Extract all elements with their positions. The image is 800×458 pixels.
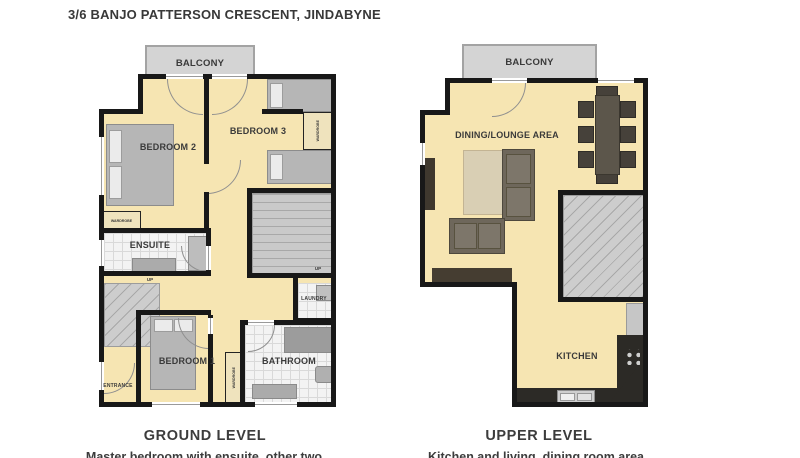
- ground-balcony-label: BALCONY: [176, 58, 224, 69]
- wall: [247, 273, 336, 278]
- wall: [204, 192, 209, 233]
- ground-level-heading: GROUND LEVEL: [95, 428, 315, 444]
- wall: [247, 188, 336, 193]
- dining-chair: [578, 101, 594, 118]
- door-gap: [492, 78, 527, 83]
- wardrobe-label: WARDROBE: [111, 219, 132, 223]
- double-bed: [106, 124, 174, 206]
- wall: [99, 271, 206, 276]
- room-label-dining-lounge: DINING/LOUNGE AREA: [427, 130, 587, 140]
- window: [152, 402, 200, 407]
- notch-cover: [95, 70, 138, 111]
- dining-chair: [620, 126, 636, 143]
- dining-chair: [620, 151, 636, 168]
- door-gap: [208, 318, 213, 334]
- upper-balcony: BALCONY: [462, 44, 597, 81]
- ground-level-caption: Master bedroom with ensuite, other two: [54, 450, 354, 458]
- pillow: [154, 319, 173, 332]
- wall: [136, 310, 211, 315]
- main-staircase: [252, 193, 333, 275]
- upper-level-heading: UPPER LEVEL: [429, 428, 649, 444]
- wall: [138, 74, 143, 114]
- wardrobe-label: WARDROBE: [232, 367, 236, 388]
- door-gap: [206, 246, 211, 270]
- sink-basin: [577, 393, 592, 401]
- pillow: [270, 154, 283, 180]
- vanity: [132, 258, 176, 272]
- upper-staircase: [563, 195, 645, 299]
- pillow: [109, 166, 122, 199]
- up-label: UP: [140, 277, 160, 282]
- wall: [136, 310, 141, 407]
- room-label-kitchen: KITCHEN: [537, 351, 617, 361]
- sink-basin: [560, 393, 575, 401]
- room-label-bedroom2: BEDROOM 2: [128, 142, 208, 152]
- wall: [512, 282, 517, 407]
- dining-table: [595, 95, 620, 175]
- wall: [643, 78, 648, 407]
- wall: [558, 190, 648, 195]
- wall: [558, 190, 563, 302]
- wall: [262, 109, 303, 114]
- dining-chair: [578, 151, 594, 168]
- room-label-bedroom1: BEDROOM 1: [147, 356, 227, 366]
- wall: [331, 74, 336, 407]
- door-gap: [248, 320, 274, 325]
- dining-chair: [620, 101, 636, 118]
- notch-cover: [412, 287, 512, 412]
- single-bed: [267, 79, 332, 112]
- loveseat: [449, 218, 505, 254]
- room-label-ensuite: ENSUITE: [115, 240, 185, 250]
- upper-level-caption: Kitchen and living, dining room area: [386, 450, 686, 458]
- upper-balcony-label: BALCONY: [505, 57, 553, 68]
- sofa-cushion: [478, 223, 501, 249]
- single-bed: [267, 150, 333, 184]
- room-label-bedroom3: BEDROOM 3: [218, 126, 298, 136]
- wall: [240, 320, 245, 407]
- wardrobe: WARDROBE: [303, 112, 333, 150]
- room-label-laundry: LAUNDRY: [294, 296, 334, 302]
- page-title: 3/6 BANJO PATTERSON CRESCENT, JINDABYNE: [68, 7, 381, 22]
- floor-plan-page: 3/6 BANJO PATTERSON CRESCENT, JINDABYNE …: [0, 0, 800, 458]
- cooktop: [623, 349, 640, 365]
- room-label-entrance: ENTRANCE: [98, 383, 138, 389]
- wall: [512, 402, 648, 407]
- wardrobe-label: WARDROBE: [316, 120, 320, 141]
- vanity: [252, 384, 297, 399]
- sofa-cushion: [454, 223, 477, 249]
- wall: [99, 109, 143, 114]
- notch-cover: [415, 75, 445, 111]
- window: [598, 78, 634, 83]
- wall: [420, 282, 517, 287]
- pillow: [109, 130, 122, 163]
- wall: [420, 110, 425, 287]
- wall: [99, 402, 336, 407]
- sofa-cushion: [506, 154, 531, 184]
- sideboard: [432, 268, 512, 283]
- wall: [247, 188, 252, 273]
- door-gap: [166, 74, 203, 79]
- door-gap: [212, 74, 247, 79]
- window: [99, 137, 104, 195]
- window: [99, 240, 104, 266]
- wall: [99, 228, 211, 233]
- window: [420, 143, 425, 165]
- room-label-bathroom: BATHROOM: [249, 356, 329, 366]
- pillow: [270, 83, 283, 108]
- window: [255, 402, 297, 407]
- wall: [558, 297, 648, 302]
- sofa-cushion: [506, 187, 531, 217]
- bathtub: [284, 327, 333, 353]
- up-label: UP: [308, 266, 328, 271]
- sofa: [502, 149, 535, 221]
